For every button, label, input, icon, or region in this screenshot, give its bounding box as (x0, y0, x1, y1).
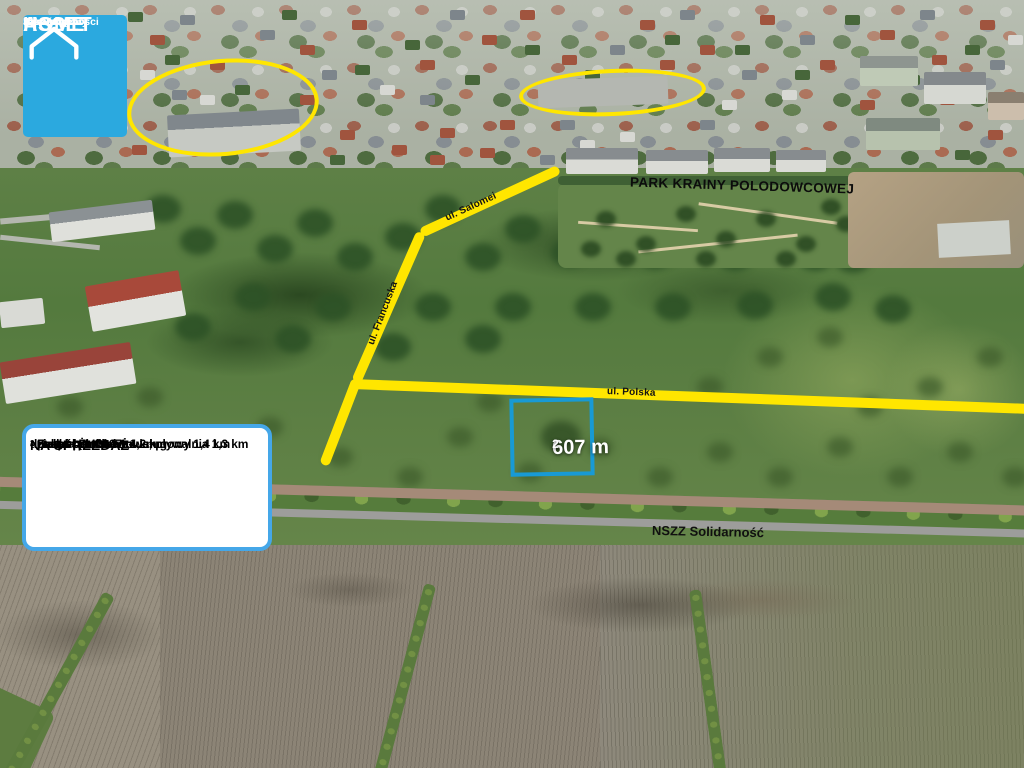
park-path (638, 234, 797, 254)
sale-feature: - pasaż handlowo- usługowy 1,4 km (30, 436, 230, 453)
meadow-patch (860, 300, 1024, 480)
residential-building (0, 298, 45, 328)
apartment-block (776, 150, 826, 172)
road-label-polska: ul. Polska (607, 386, 656, 399)
apartment-block (988, 92, 1024, 120)
park-trees (558, 183, 574, 195)
apartment-block (860, 56, 918, 86)
farmland (0, 545, 1024, 768)
street-label-nszz: NSZZ Solidarność (652, 523, 764, 540)
bush-scatter (0, 0, 20, 14)
park-path (698, 202, 837, 224)
agency-logo: HOME ASSET Nieruchomości Sprzedajemy Jak… (23, 15, 127, 137)
plot-outline: 607 m2 (509, 397, 594, 476)
soil-patches (0, 545, 1024, 768)
park-area (558, 183, 868, 268)
concrete-pad (937, 220, 1011, 258)
apartment-block (714, 148, 770, 172)
apartment-block (646, 150, 708, 174)
logo-tagline: Jakością (23, 15, 67, 29)
apartment-block (566, 148, 638, 174)
apartment-block (866, 118, 940, 150)
park-path (578, 221, 698, 232)
sale-info-box: NA SPRZEDAŻ działka pow. 607 m2 - Szkoła… (22, 424, 272, 551)
apartment-block (924, 72, 986, 104)
aerial-photo: ul. Salomei ul. Francuska ul. Polska PAR… (0, 0, 1024, 768)
